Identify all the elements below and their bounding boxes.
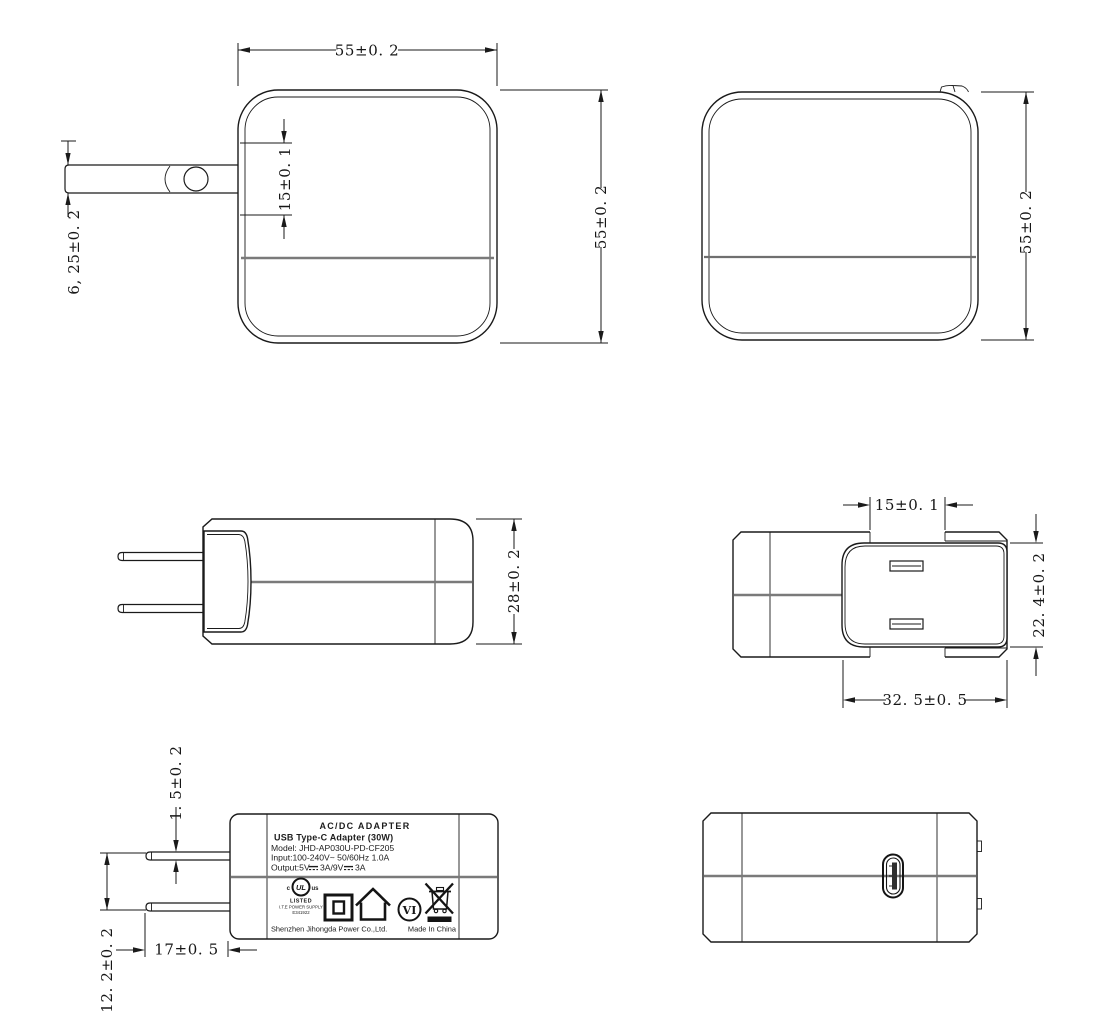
dc-symbol (344, 867, 353, 870)
dim-front-slot: 15±0. 1 (240, 119, 294, 239)
arrowhead (173, 860, 178, 872)
dim-side-depth-text: 28±0. 2 (505, 549, 523, 613)
weee-bin-icon (426, 884, 454, 923)
arrowhead (65, 193, 70, 205)
ul-supply-text: I.T.E POWER SUPPLY (279, 905, 323, 910)
dim-top-face-depth: 22. 4±0. 2 (1010, 514, 1048, 676)
dim-pin-spacing-text: 12. 2±0. 2 (98, 927, 116, 1011)
dim-top-face-width: 32. 5±0. 5 (843, 660, 1007, 709)
ac-pin-bottom (146, 903, 230, 911)
top-view: 15±0. 1 22. 4±0. 2 32. 5±0. 5 (733, 496, 1048, 709)
side-view: 28±0. 2 (118, 519, 523, 644)
dim-pin-length: 17±0. 5 (116, 913, 257, 959)
label-input: Input:100-240V~ 50/60Hz 1.0A (271, 853, 390, 863)
dim-pin-spacing: 12. 2±0. 2 (98, 853, 146, 1011)
arrowhead (173, 840, 178, 852)
dim-front-height: 55±0. 2 (500, 90, 610, 343)
blade-hole (184, 167, 208, 191)
dim-blade-width-text: 6, 25±0. 2 (65, 209, 83, 294)
dc-symbol (309, 867, 318, 870)
efficiency-vi-icon: VI (399, 899, 421, 921)
arrowhead (133, 947, 145, 952)
dim-top-face-width-text: 32. 5±0. 5 (882, 691, 967, 709)
dim-top-pin-span-text: 15±0. 1 (875, 496, 939, 514)
manufacturer-text: Shenzhen Jihongda Power Co.,Ltd. (271, 925, 387, 934)
rear-view: 55±0. 2 (702, 85, 1035, 340)
bottom-view (703, 813, 982, 942)
arrowhead (485, 47, 497, 52)
label-output-suffix: 3A (355, 863, 366, 873)
ac-pin-bottom (118, 605, 203, 613)
front-view: 55±0. 2 55±0. 2 15±0. 1 (61, 42, 610, 344)
efficiency-level-text: VI (402, 904, 417, 917)
arrowhead (238, 47, 250, 52)
arrowhead (945, 502, 957, 507)
ac-pin-top (146, 852, 230, 860)
dim-pin-length-text: 17±0. 5 (154, 941, 218, 959)
dim-front-width: 55±0. 2 (238, 42, 497, 87)
dim-side-depth: 28±0. 2 (476, 519, 523, 644)
arrowhead (1033, 531, 1038, 543)
arrowhead (511, 519, 516, 531)
label-title: AC/DC ADAPTER (319, 821, 410, 831)
front-body-outline (238, 90, 497, 343)
usb-c-tongue (892, 863, 897, 890)
ul-mark-text: UL (296, 883, 306, 892)
arrowhead (843, 697, 855, 702)
arrowhead (995, 697, 1007, 702)
arrowhead (511, 632, 516, 644)
arrowhead (1033, 647, 1038, 659)
label-output-prefix: Output:5V (271, 863, 310, 873)
arrowhead (104, 853, 109, 865)
ul-c-text: c (287, 886, 291, 892)
arrowhead (1023, 328, 1028, 340)
dim-top-face-depth-text: 22. 4±0. 2 (1030, 552, 1048, 637)
ul-file-number: E341922 (292, 910, 310, 915)
technical-drawing-sheet: 55±0. 2 55±0. 2 15±0. 1 (0, 0, 1100, 1011)
dim-pin-thickness: 1. 5±0. 2 (167, 745, 185, 884)
arrowhead (228, 947, 240, 952)
dim-front-slot-text: 15±0. 1 (276, 147, 294, 211)
rear-body-inner-line (709, 99, 971, 333)
adapter-drawing: 55±0. 2 55±0. 2 15±0. 1 (0, 0, 1100, 1011)
arrowhead (1023, 92, 1028, 104)
double-insulation-icon (325, 895, 352, 920)
rear-top-latch (940, 85, 969, 92)
ul-mark-icon: c UL us LISTED I.T.E POWER SUPPLY E34192… (279, 879, 323, 915)
ul-us-text: us (312, 886, 320, 892)
usb-c-port (883, 855, 903, 898)
arrowhead (281, 215, 286, 227)
arrowhead (858, 502, 870, 507)
arrowhead (598, 90, 603, 102)
ac-pin-top (118, 553, 203, 561)
side-plug-face-plate (204, 531, 251, 632)
arrowhead (598, 331, 603, 343)
ac-blade (65, 165, 238, 193)
dim-rear-height: 55±0. 2 (981, 92, 1035, 340)
indoor-use-icon (356, 889, 390, 920)
label-output-mid: 3A/9V (320, 863, 344, 873)
label-subtitle: USB Type-C Adapter (30W) (274, 833, 393, 843)
dim-front-width-text: 55±0. 2 (335, 42, 399, 60)
dim-blade-width: 6, 25±0. 2 (61, 141, 83, 295)
label-model: Model: JHD-AP030U-PD-CF205 (271, 843, 394, 853)
arrowhead (281, 131, 286, 143)
top-plug-face (842, 543, 1007, 647)
dim-front-height-text: 55±0. 2 (592, 185, 610, 249)
bottom-body-outline (703, 813, 977, 942)
label-view: AC/DC ADAPTER USB Type-C Adapter (30W) M… (98, 745, 498, 1011)
arrowhead (104, 898, 109, 910)
rear-body-outline (702, 92, 978, 340)
label-output-line: Output:5V 3A/9V 3A (271, 863, 366, 873)
blade-fold-line (165, 166, 170, 192)
origin-text: Made In China (408, 925, 457, 934)
dim-pin-thickness-text: 1. 5±0. 2 (167, 745, 185, 820)
dim-rear-height-text: 55±0. 2 (1017, 190, 1035, 254)
dim-top-pin-span: 15±0. 1 (843, 496, 973, 530)
arrowhead (65, 153, 70, 165)
